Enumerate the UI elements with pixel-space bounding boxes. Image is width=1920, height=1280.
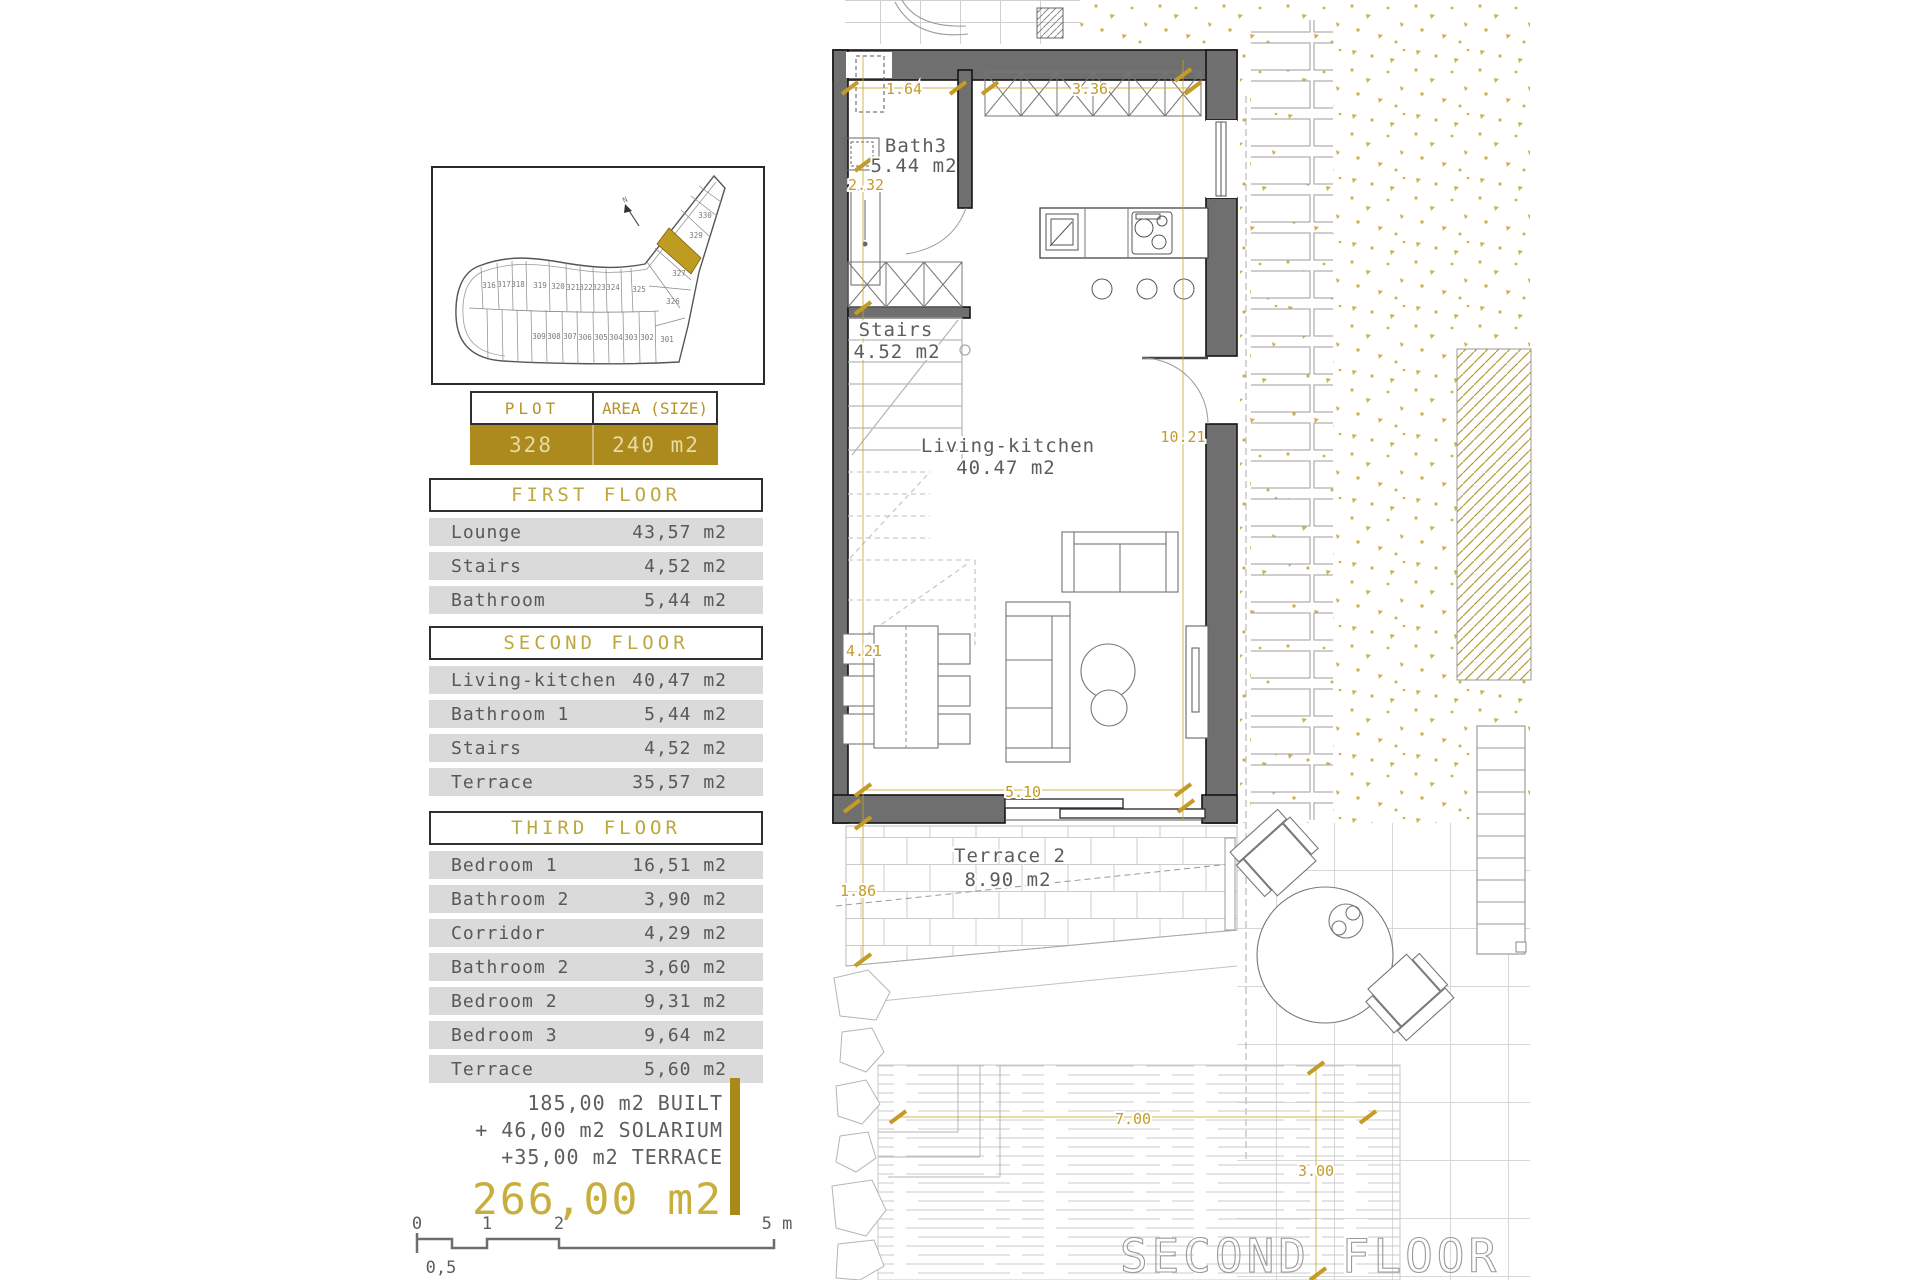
room-name: Bathroom 2 — [451, 889, 569, 910]
entrance-door — [1142, 358, 1208, 424]
svg-text:309: 309 — [532, 332, 546, 341]
wall-right-2 — [1206, 198, 1237, 356]
scale-5m: 5 m — [762, 1214, 793, 1234]
room-name: Corridor — [451, 923, 546, 944]
svg-text:317: 317 — [497, 280, 511, 289]
room-area: 9,31 m2 — [644, 991, 727, 1012]
room-name: Stairs — [451, 556, 522, 577]
table-row: Bedroom 2 9,31 m2 — [429, 987, 763, 1015]
svg-text:306: 306 — [578, 333, 592, 342]
dim-kitchen-width: 3.36 — [1072, 80, 1108, 98]
table-row: Terrace 35,57 m2 — [429, 768, 763, 796]
coffee-table — [1081, 644, 1135, 726]
table-row: Bathroom 2 3,90 m2 — [429, 885, 763, 913]
dim-pool-depth: 3.00 — [1298, 1162, 1334, 1180]
area-header-cell: AREA (SIZE) — [592, 391, 718, 425]
svg-text:301: 301 — [660, 335, 674, 344]
svg-text:305: 305 — [594, 333, 608, 342]
svg-text:325: 325 — [632, 285, 646, 294]
bath-door — [906, 208, 966, 254]
dim-pool-width: 7.00 — [1115, 1110, 1151, 1128]
floor-plan-drawing: 1.64 3.36 2.32 10.21 4.21 5.10 1.86 7.00… — [820, 0, 1580, 1280]
room-name: Bathroom — [451, 590, 546, 611]
scale-half: 0,5 — [426, 1258, 457, 1278]
room-name: Bathroom 1 — [451, 704, 569, 725]
wall-bath-partition — [958, 70, 972, 208]
second-floor-section: SECOND FLOOR Living-kitchen 40,47 m2 Bat… — [429, 626, 763, 796]
wall-top — [833, 50, 1237, 80]
room-area: 35,57 m2 — [632, 772, 727, 793]
table-row: Stairs 4,52 m2 — [429, 734, 763, 762]
room-name: Bedroom 1 — [451, 855, 558, 876]
svg-text:319: 319 — [533, 281, 547, 290]
scale-1: 1 — [482, 1214, 492, 1234]
plot-area-table: PLOT AREA (SIZE) 328 240 m2 — [470, 391, 718, 465]
scale-2: 2 — [554, 1214, 564, 1234]
sofa-vertical — [1006, 602, 1070, 762]
dim-bath-width: 1.64 — [886, 80, 922, 98]
sofa-horizontal — [1062, 532, 1178, 592]
room-name: Lounge — [451, 522, 522, 543]
table-row: Bathroom 1 5,44 m2 — [429, 700, 763, 728]
area-summary: 185,00 m2 BUILT + 46,00 m2 SOLARIUM +35,… — [431, 1090, 723, 1223]
wall-left — [833, 50, 848, 823]
svg-text:320: 320 — [551, 282, 565, 291]
room-name: Terrace — [451, 772, 534, 793]
svg-text:327: 327 — [672, 269, 686, 278]
site-plan-box: N 316 317 318 319 320 321 322 323 324 30… — [431, 166, 765, 385]
wall-right-1 — [1206, 50, 1237, 120]
table-row: Terrace 5,60 m2 — [429, 1055, 763, 1083]
plot-area-cell: 240 m2 — [592, 425, 718, 465]
sliding-door — [1005, 799, 1205, 820]
window-right — [1206, 120, 1237, 198]
summary-accent-bar — [730, 1078, 740, 1215]
scale-bar: 0 1 2 5 m 0,5 — [399, 1211, 799, 1280]
first-floor-section: FIRST FLOOR Lounge 43,57 m2 Stairs 4,52 … — [429, 478, 763, 614]
label-living-name: Living-kitchen — [921, 435, 1095, 457]
dim-bath-height: 2.32 — [848, 176, 884, 194]
svg-text:323: 323 — [592, 283, 606, 292]
hatched-box — [1037, 8, 1063, 38]
svg-text:307: 307 — [563, 332, 577, 341]
label-terrace-area: 8.90 m2 — [964, 869, 1051, 891]
label-stairs-name: Stairs — [859, 319, 934, 341]
bar-stools — [1092, 279, 1194, 299]
svg-text:322: 322 — [579, 283, 593, 292]
floor-title: THIRD FLOOR — [429, 811, 763, 845]
wall-right-3 — [1206, 424, 1237, 823]
label-terrace-name: Terrace 2 — [954, 845, 1066, 867]
north-arrow-icon: N — [621, 195, 639, 226]
room-area: 16,51 m2 — [632, 855, 727, 876]
scale-0: 0 — [412, 1214, 422, 1234]
svg-text:316: 316 — [482, 281, 496, 290]
room-name: Bedroom 3 — [451, 1025, 558, 1046]
svg-text:324: 324 — [606, 283, 620, 292]
table-row: Bedroom 1 16,51 m2 — [429, 851, 763, 879]
wall-hall-cap — [848, 307, 970, 318]
svg-text:318: 318 — [511, 280, 525, 289]
room-area: 40,47 m2 — [632, 670, 727, 691]
room-area: 4,52 m2 — [644, 738, 727, 759]
room-area: 43,57 m2 — [632, 522, 727, 543]
floor-title: FIRST FLOOR — [429, 478, 763, 512]
wall-bottom-right — [1202, 795, 1237, 823]
table-row: Corridor 4,29 m2 — [429, 919, 763, 947]
plot-header-cell: PLOT — [470, 391, 592, 425]
tv-unit — [1186, 626, 1208, 738]
scale-bar-line — [417, 1233, 774, 1253]
room-area: 9,64 m2 — [644, 1025, 727, 1046]
room-area: 3,90 m2 — [644, 889, 727, 910]
summary-solarium: + 46,00 m2 SOLARIUM — [431, 1117, 723, 1144]
room-area: 5,60 m2 — [644, 1059, 727, 1080]
third-floor-section: THIRD FLOOR Bedroom 1 16,51 m2 Bathroom … — [429, 811, 763, 1083]
room-area: 4,52 m2 — [644, 556, 727, 577]
svg-text:330: 330 — [698, 211, 712, 220]
summary-terrace: +35,00 m2 TERRACE — [431, 1144, 723, 1171]
table-row: Bedroom 3 9,64 m2 — [429, 1021, 763, 1049]
summary-built: 185,00 m2 BUILT — [431, 1090, 723, 1117]
svg-text:326: 326 — [666, 297, 680, 306]
room-name: Bedroom 2 — [451, 991, 558, 1012]
room-area: 5,44 m2 — [644, 704, 727, 725]
staircase — [848, 318, 975, 645]
label-living-area: 40.47 m2 — [956, 457, 1056, 479]
dim-living-height: 4.21 — [846, 642, 882, 660]
label-bath-name: Bath3 — [885, 135, 947, 157]
room-area: 3,60 m2 — [644, 957, 727, 978]
room-name: Bathroom 2 — [451, 957, 569, 978]
room-name: Living-kitchen — [451, 670, 617, 691]
label-stairs-area: 4.52 m2 — [853, 341, 940, 363]
room-name: Terrace — [451, 1059, 534, 1080]
svg-text:321: 321 — [566, 283, 580, 292]
svg-text:304: 304 — [609, 333, 623, 342]
stepping-slabs — [1251, 20, 1333, 820]
dim-living-width: 5.10 — [1005, 783, 1041, 801]
svg-text:329: 329 — [689, 231, 703, 240]
dim-terrace-height: 1.86 — [840, 882, 876, 900]
room-area: 4,29 m2 — [644, 923, 727, 944]
table-row: Stairs 4,52 m2 — [429, 552, 763, 580]
site-plan-drawing: N 316 317 318 319 320 321 322 323 324 30… — [433, 168, 763, 383]
floor-title: SECOND FLOOR — [429, 626, 763, 660]
floor-plan-title: SECOND FLOOR — [1120, 1229, 1500, 1280]
garden-steps — [1477, 726, 1526, 954]
dim-side-height: 10.21 — [1160, 428, 1205, 446]
table-row: Lounge 43,57 m2 — [429, 518, 763, 546]
label-bath-area: 5.44 m2 — [870, 155, 957, 177]
svg-text:303: 303 — [624, 333, 638, 342]
floorplan-sheet: N 316 317 318 319 320 321 322 323 324 30… — [0, 0, 1920, 1280]
room-area: 5,44 m2 — [644, 590, 727, 611]
table-row: Bathroom 2 3,60 m2 — [429, 953, 763, 981]
plot-number-cell: 328 — [470, 425, 592, 465]
room-name: Stairs — [451, 738, 522, 759]
svg-text:302: 302 — [640, 333, 654, 342]
svg-text:308: 308 — [547, 332, 561, 341]
table-row: Bathroom 5,44 m2 — [429, 586, 763, 614]
svg-text:N: N — [621, 195, 629, 205]
table-row: Living-kitchen 40,47 m2 — [429, 666, 763, 694]
